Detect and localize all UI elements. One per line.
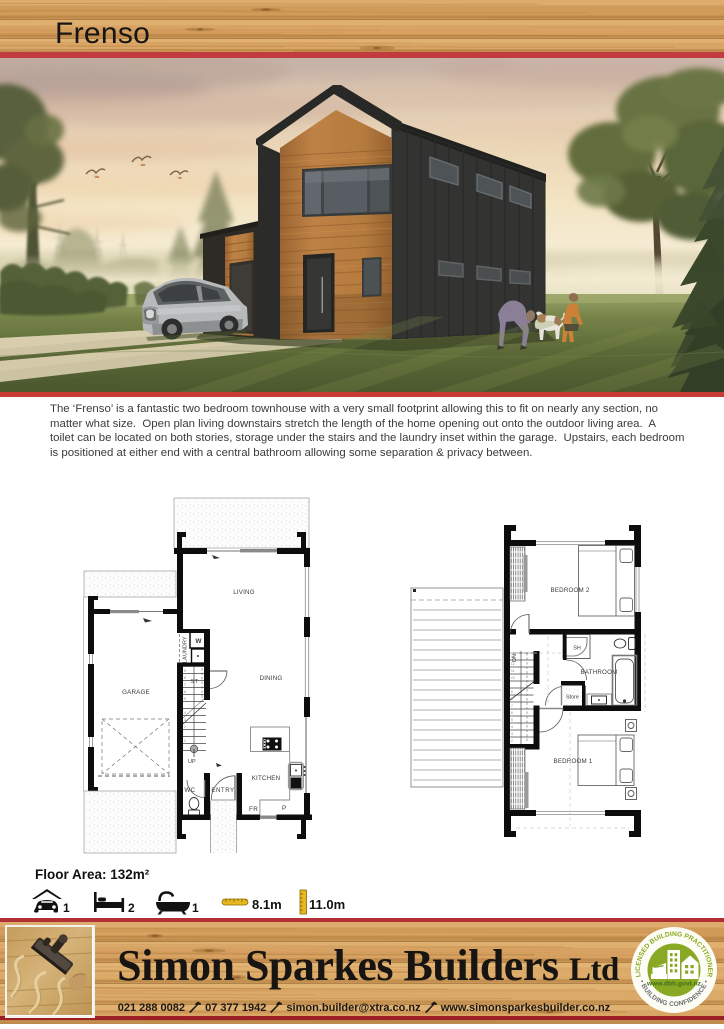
svg-text:5: 5: [184, 697, 186, 701]
svg-text:12: 12: [511, 662, 515, 666]
svg-text:SH: SH: [573, 646, 581, 652]
svg-text:FR: FR: [249, 806, 258, 813]
svg-text:1: 1: [184, 739, 186, 743]
svg-text:3: 3: [511, 732, 513, 736]
svg-text:8.1m: 8.1m: [252, 897, 282, 912]
svg-text:P: P: [282, 805, 286, 812]
svg-text:13: 13: [511, 655, 515, 659]
svg-text:3: 3: [184, 718, 186, 722]
svg-text:4: 4: [184, 711, 186, 715]
svg-text:8: 8: [511, 697, 513, 701]
svg-text:6: 6: [184, 690, 186, 694]
svg-text:LIVING: LIVING: [233, 589, 255, 596]
svg-text:ST: ST: [191, 679, 199, 685]
svg-text:4: 4: [511, 725, 513, 729]
svg-text:10: 10: [511, 676, 515, 680]
svg-text:UP: UP: [188, 759, 196, 765]
svg-text:KITCHEN: KITCHEN: [252, 775, 281, 782]
svg-text:2: 2: [128, 901, 135, 915]
svg-text:9: 9: [184, 669, 186, 673]
svg-text:W: W: [195, 638, 202, 645]
svg-text:BEDROOM 1: BEDROOM 1: [554, 758, 593, 765]
svg-text:1: 1: [192, 901, 199, 915]
svg-text:6: 6: [511, 711, 513, 715]
svg-text:1: 1: [63, 901, 70, 915]
svg-text:7: 7: [511, 704, 513, 708]
svg-text:9: 9: [511, 690, 513, 694]
svg-text:ENTRY: ENTRY: [211, 787, 234, 794]
svg-text:5: 5: [511, 718, 513, 722]
svg-text:www.dbh.govt.nz: www.dbh.govt.nz: [646, 981, 702, 988]
svg-text:11: 11: [511, 669, 515, 673]
svg-text:8: 8: [184, 676, 186, 680]
svg-text:2: 2: [184, 725, 186, 729]
svg-text:DINING: DINING: [260, 675, 283, 682]
svg-text:GARAGE: GARAGE: [122, 689, 150, 696]
svg-text:LAUNDRY: LAUNDRY: [183, 636, 189, 663]
svg-text:Store: Store: [566, 695, 579, 701]
svg-text:11.0m: 11.0m: [309, 897, 345, 912]
svg-text:BEDROOM 2: BEDROOM 2: [551, 587, 590, 594]
svg-text:7: 7: [184, 683, 186, 687]
svg-text:2: 2: [511, 739, 513, 743]
